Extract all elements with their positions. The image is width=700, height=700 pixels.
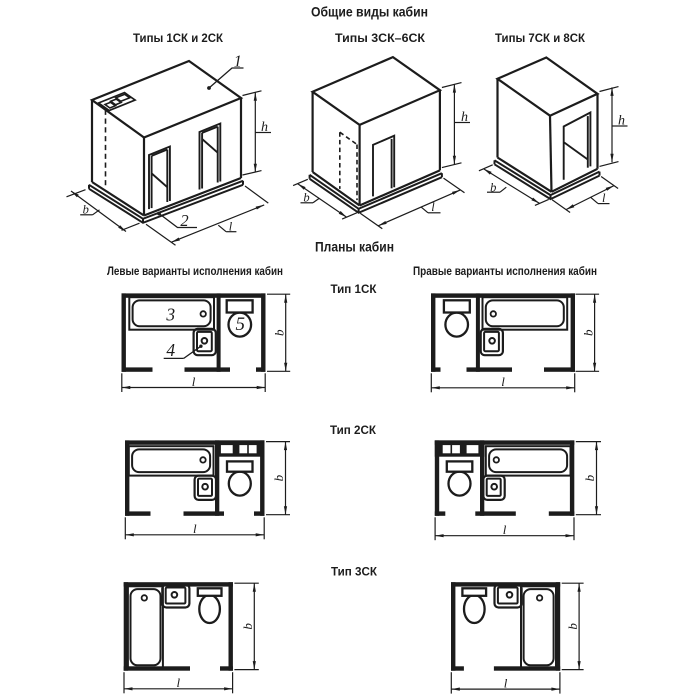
svg-text:1: 1 <box>234 51 242 70</box>
svg-text:5: 5 <box>235 314 245 335</box>
svg-text:Левые варианты исполнения каби: Левые варианты исполнения кабин <box>107 266 283 278</box>
svg-text:l: l <box>503 522 507 537</box>
svg-text:b: b <box>580 329 595 336</box>
svg-text:Типы 3СК–6СК: Типы 3СК–6СК <box>335 31 426 45</box>
svg-text:h: h <box>618 114 625 129</box>
svg-text:Правые варианты исполнения каб: Правые варианты исполнения кабин <box>413 266 597 278</box>
svg-text:l: l <box>229 219 233 233</box>
svg-text:b: b <box>565 623 580 630</box>
svg-text:b: b <box>240 623 255 630</box>
svg-text:h: h <box>261 120 268 135</box>
svg-text:b: b <box>490 180 496 194</box>
svg-text:l: l <box>431 200 435 214</box>
svg-text:Тип 2СК: Тип 2СК <box>330 423 377 437</box>
svg-text:b: b <box>83 202 89 216</box>
svg-text:l: l <box>192 374 196 389</box>
svg-text:b: b <box>303 191 309 205</box>
svg-text:Тип 3СК: Тип 3СК <box>331 565 378 579</box>
svg-text:l: l <box>193 521 197 536</box>
svg-text:Планы кабин: Планы кабин <box>315 240 394 255</box>
svg-text:l: l <box>602 191 606 205</box>
svg-text:Типы 1СК и 2СК: Типы 1СК и 2СК <box>133 31 224 45</box>
svg-text:h: h <box>461 110 468 125</box>
svg-text:4: 4 <box>166 340 175 360</box>
svg-text:l: l <box>176 675 180 690</box>
svg-text:Типы 7СК и 8СК: Типы 7СК и 8СК <box>495 31 586 45</box>
svg-text:3: 3 <box>165 304 175 324</box>
svg-text:2: 2 <box>180 211 188 230</box>
svg-text:l: l <box>501 374 505 389</box>
svg-text:l: l <box>504 676 508 691</box>
svg-text:b: b <box>582 474 597 481</box>
svg-text:b: b <box>271 474 286 481</box>
svg-text:Тип 1СК: Тип 1СК <box>331 282 378 296</box>
svg-text:b: b <box>271 329 286 336</box>
svg-text:Общие виды кабин: Общие виды кабин <box>311 5 428 20</box>
